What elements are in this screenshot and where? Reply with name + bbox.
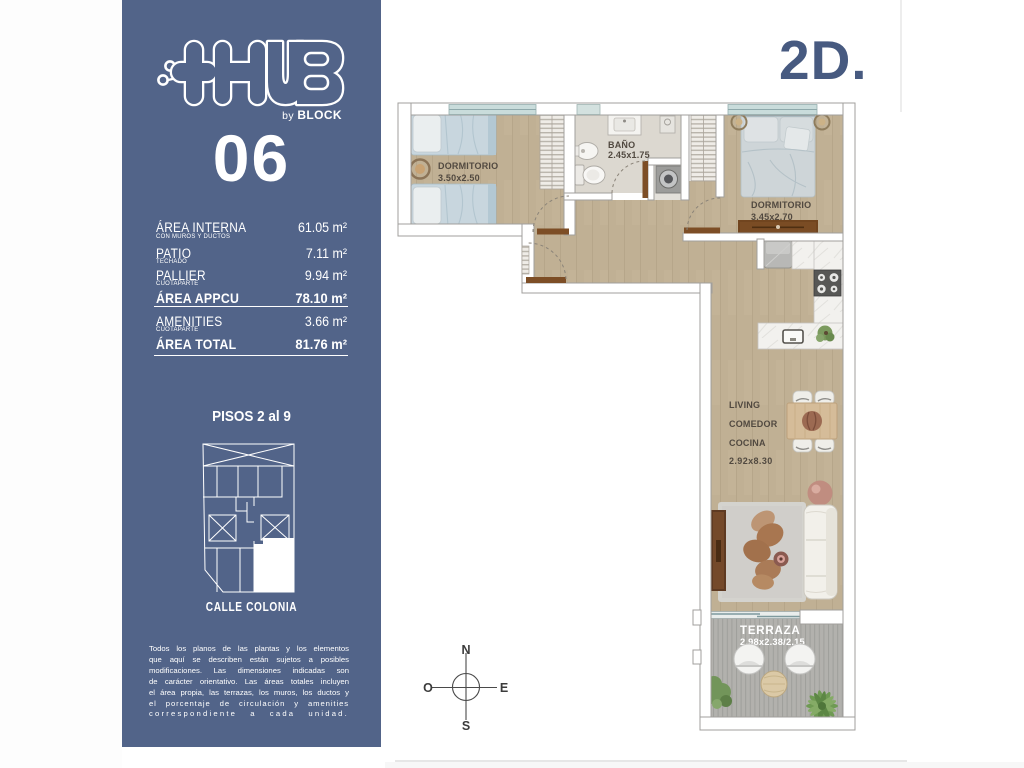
svg-text:TERRAZA: TERRAZA [740,625,801,637]
svg-text:3.50x2.50: 3.50x2.50 [438,173,480,183]
svg-text:N: N [461,643,470,657]
svg-text:DORMITORIO: DORMITORIO [438,161,498,171]
svg-text:E: E [500,681,508,695]
svg-text:COMEDOR: COMEDOR [729,419,778,429]
svg-text:DORMITORIO: DORMITORIO [751,200,811,210]
svg-text:S: S [462,719,470,733]
svg-text:COCINA: COCINA [729,438,766,448]
svg-text:BAÑO: BAÑO [608,140,635,150]
svg-text:O: O [423,681,433,695]
svg-text:LIVING: LIVING [729,400,760,410]
svg-text:2.92x8.30: 2.92x8.30 [729,456,773,466]
svg-text:2.45x1.75: 2.45x1.75 [608,150,650,160]
